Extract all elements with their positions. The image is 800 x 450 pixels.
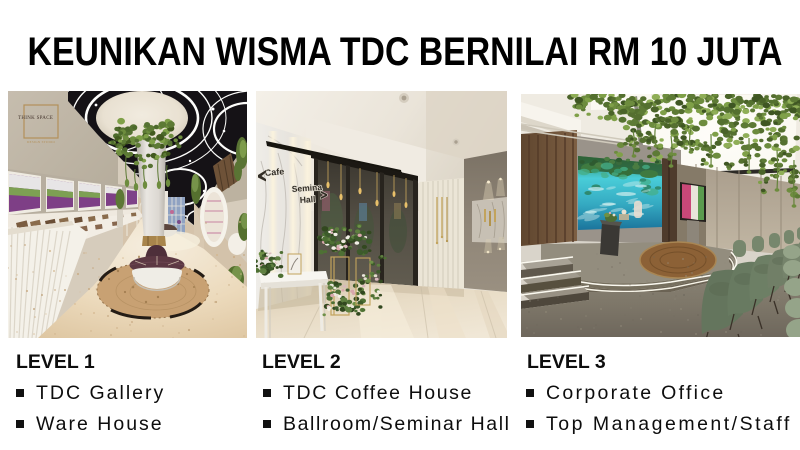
svg-text:Cafe: Cafe bbox=[264, 166, 284, 178]
svg-text:DESIGN STUDIO: DESIGN STUDIO bbox=[27, 140, 55, 144]
svg-text:THINK SPACE: THINK SPACE bbox=[18, 116, 53, 121]
svg-text:Semina: Semina bbox=[291, 182, 322, 194]
svg-text:Hall: Hall bbox=[299, 194, 315, 205]
